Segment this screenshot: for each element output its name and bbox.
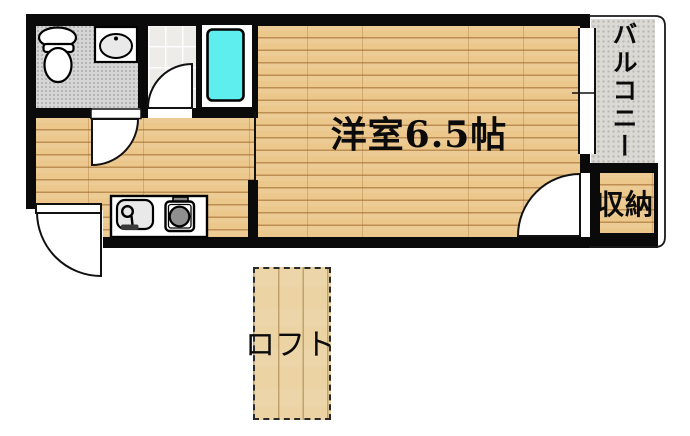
wall-mid-a	[36, 108, 92, 118]
wall-toilet-shower	[138, 25, 148, 108]
main-room-label: 洋室6.5帖	[258, 26, 580, 237]
loft-label: ロフト	[253, 267, 327, 416]
wall-mid-b	[140, 108, 148, 118]
storage-doorway	[580, 173, 590, 237]
wall-bottom	[103, 237, 658, 248]
wall-top	[26, 14, 590, 26]
storage-label: 収納	[592, 173, 658, 233]
wall-stub	[248, 180, 258, 238]
toilet-room-floor	[36, 25, 138, 108]
entrance-opening	[36, 210, 103, 237]
shower-room-floor	[148, 25, 196, 112]
wall-left	[26, 14, 36, 209]
balcony-label: バルコニー	[591, 19, 655, 163]
bath-unit-block	[196, 14, 258, 112]
room-kitchen-divider	[254, 112, 256, 180]
wall-right-mid	[580, 153, 590, 173]
floorplan: 洋室6.5帖 バルコニー 収納 ロフト	[0, 0, 690, 436]
